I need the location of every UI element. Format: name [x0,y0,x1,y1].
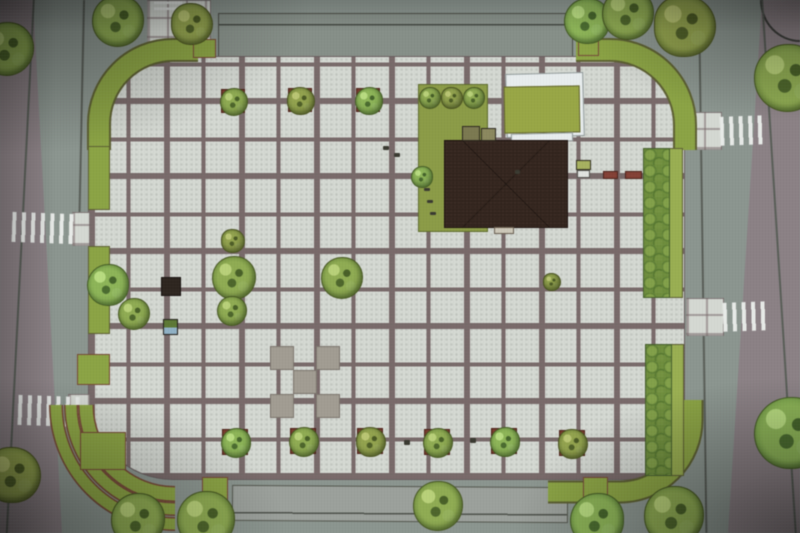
tree [289,427,319,457]
tree [602,0,654,40]
kiosk-west [161,277,181,296]
crossing-landing-left-1 [72,212,90,246]
tree [287,87,315,115]
bench-east-2 [625,171,642,179]
road-edge-right-inner [698,0,707,533]
crosswalk-left-1 [11,212,74,244]
crosswalk-right-2 [723,301,771,332]
tree [570,493,624,533]
bench-east-1 [603,171,618,179]
site-mark [427,200,433,203]
site-mark [394,153,400,157]
accent-tile [270,346,294,370]
tree [171,3,213,45]
road-lane-bottom [232,485,568,523]
road-lane-top [218,13,573,57]
tree [644,486,704,533]
accent-tile [293,370,317,394]
hedge-right-2 [645,344,672,476]
site-plan-photo [0,0,800,533]
kiosk-east-base [577,170,590,178]
plan-canvas [0,0,800,533]
terrace-lawn-block [80,432,126,470]
building-footprint [444,140,568,228]
tree [490,427,520,457]
site-mark [383,146,389,150]
tree [220,88,248,116]
tree [87,264,129,306]
tree [212,256,256,300]
crosswalk-left-2 [17,395,82,427]
kiosk-east-roof [576,160,591,170]
recycling-bin [163,319,178,335]
tree [92,0,144,47]
road-edge-left-inner [79,0,85,212]
green-strip-right-1 [669,148,683,298]
building-entrance-step [494,227,514,234]
tree [423,428,453,458]
planter-green-left [77,354,110,385]
site-mark [470,438,476,443]
pergola-lawn-roof [504,85,581,133]
crossing-landing-right-1 [684,112,722,150]
tree [411,166,433,188]
green-strip-right-2 [671,344,684,476]
tree [654,0,716,57]
site-mark [404,440,410,445]
tree [558,429,588,459]
tree [118,298,150,330]
green-strip-left-1 [88,146,110,210]
tree [463,87,485,109]
crosswalk-right-1 [720,115,768,146]
accent-tile [316,394,340,418]
tree [111,493,165,533]
tree [221,229,245,253]
hedge-right-1 [643,148,670,298]
tree [413,481,463,531]
tree [356,427,386,457]
building-vestibule-2 [481,128,496,141]
building-vestibule-1 [462,126,480,141]
site-mark [424,188,430,191]
crossing-landing-right-2 [686,298,724,336]
accent-tile [270,394,294,418]
tree [419,87,441,109]
tree [355,87,383,115]
tree [217,296,247,326]
site-mark [430,212,436,215]
site-mark [515,170,520,174]
tree [321,257,363,299]
tree [221,428,251,458]
tree [543,273,561,291]
accent-tile [316,346,340,370]
plaza-paving [88,56,685,480]
tree [441,87,463,109]
